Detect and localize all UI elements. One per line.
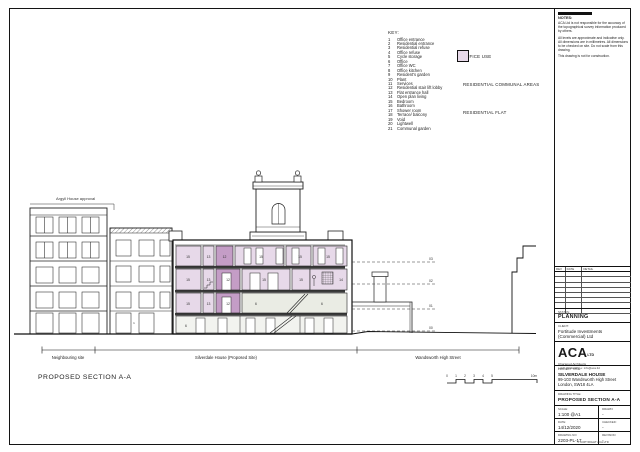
svg-text:15: 15: [262, 278, 266, 282]
notes-paragraph: All levels are approximate and indicativ…: [558, 36, 628, 52]
finial-post: [294, 176, 301, 182]
copyright-footer: © COPYRIGHT ACA LTD: [555, 440, 631, 444]
floor-slab: [175, 290, 345, 293]
notes-title: NOTES:: [558, 16, 628, 20]
project-label: PROJECT TITLE:: [558, 367, 628, 371]
notes-paragraph: This drawing is not for construction.: [558, 54, 628, 58]
client-label: CLIENT:: [558, 324, 628, 328]
svg-text:6: 6: [321, 302, 323, 306]
finial-ball: [295, 171, 299, 175]
status-value: PLANNING: [558, 314, 628, 320]
floor-slab: [175, 266, 345, 269]
front-elevation-block: 1: [110, 228, 172, 334]
site-dimension-line: [42, 347, 519, 354]
svg-text:15: 15: [186, 302, 190, 306]
chimney-cap: [372, 272, 388, 277]
notes-header-bar: [558, 12, 592, 15]
tower-cupola: [250, 171, 306, 243]
svg-text:02: 02: [429, 279, 433, 283]
client-name: (Commercial) Ltd: [558, 334, 628, 339]
svg-text:15: 15: [186, 255, 190, 259]
approval-note: Argyll House approval: [56, 196, 95, 201]
notes-block: NOTES: ACA Ltd is not responsible for th…: [555, 12, 631, 61]
svg-text:12: 12: [226, 278, 230, 282]
svg-text:4: 4: [482, 374, 484, 378]
svg-text:15: 15: [298, 255, 302, 259]
field-row: DATE: 14/12/2020 CHECKED: -: [555, 419, 631, 432]
drawing-title-value: PROPOSED SECTION A-A: [558, 397, 628, 402]
legend-item-office: OFFICE USE: [457, 50, 539, 62]
status-section: STATUS: PLANNING: [555, 308, 631, 320]
key-list: KEY: 1Office entrance 2Residential entra…: [388, 30, 463, 131]
svg-text:15: 15: [299, 278, 303, 282]
client-name: Fortitude Investments: [558, 329, 628, 334]
svg-text:12: 12: [223, 255, 227, 259]
checked-value: -: [602, 425, 631, 430]
client-section: CLIENT: Fortitude Investments (Commercia…: [555, 322, 631, 339]
room-number: 6: [185, 324, 187, 328]
company-logo-suffix: LTD: [587, 353, 594, 357]
title-block: NOTES: ACA Ltd is not responsible for th…: [554, 8, 631, 445]
svg-text:5: 5: [491, 374, 493, 378]
section-drawing: Argyll House approval: [0, 0, 640, 452]
svg-text:Neighbouring site: Neighbouring site: [52, 355, 85, 360]
room-office: [242, 293, 347, 313]
svg-text:15: 15: [259, 255, 263, 259]
svg-text:15: 15: [186, 278, 190, 282]
scale-label: SCALE:: [558, 407, 598, 411]
svg-text:13: 13: [207, 302, 211, 306]
chimney: [374, 276, 386, 302]
drawing-title-label: DRAWING TITLE:: [558, 392, 628, 396]
drawing-number-label: DRAWING NO:: [558, 433, 598, 437]
drawing-caption: PROPOSED SECTION A-A: [38, 374, 131, 381]
site-segment-labels: Neighbouring site Silverdale House (Prop…: [52, 355, 462, 360]
revision-label: REVISION:: [602, 433, 631, 437]
scale-bar: 0 1 2 3 4 5 10m: [446, 374, 537, 383]
right-wing: [352, 272, 412, 333]
company-logo: ACA: [558, 345, 587, 360]
level-lines: [352, 262, 436, 331]
date-value: 14/12/2020: [558, 425, 598, 430]
svg-text:Wandsworth High Street: Wandsworth High Street: [415, 355, 461, 360]
legend-item-communal: RESIDENTIAL COMMUNAL AREAS: [457, 78, 539, 90]
legend: OFFICE USE RESIDENTIAL COMMUNAL AREAS RE…: [457, 50, 539, 134]
level-labels: 03 02 01 00: [429, 257, 433, 330]
svg-text:01: 01: [429, 304, 433, 308]
field-row: SCALE: 1:100 @A1 DRAWN: -: [555, 406, 631, 419]
drawn-label: DRAWN:: [602, 407, 631, 411]
scale-value: 1:100 @A1: [558, 412, 598, 417]
floor-slab: [175, 313, 347, 316]
scale-bar-labels: 0 1 2 3 4 5 10m: [446, 374, 537, 378]
svg-text:10m: 10m: [531, 374, 538, 378]
project-address: London, SW18 4LA: [558, 382, 628, 387]
neighbouring-building-right-profile: [512, 246, 536, 333]
svg-text:2: 2: [464, 374, 466, 378]
svg-text:03: 03: [429, 257, 433, 261]
svg-text:1: 1: [455, 374, 457, 378]
project-section: PROJECT TITLE: SILVERDALE HOUSE 99-103 W…: [555, 365, 631, 387]
svg-text:13: 13: [207, 255, 211, 259]
legend-swatch-flat: [457, 50, 469, 62]
svg-text:Silverdale House (Proposed Sit: Silverdale House (Proposed Site): [195, 355, 258, 360]
checked-label: CHECKED:: [602, 420, 631, 424]
revision-table: REV DATE DETAIL: [555, 266, 631, 314]
legend-label: RESIDENTIAL FLAT: [463, 110, 506, 115]
svg-text:12: 12: [226, 302, 230, 306]
legend-item-flat: RESIDENTIAL FLAT: [457, 106, 539, 118]
svg-text:0: 0: [446, 374, 448, 378]
lower-ground-rooms: 6: [176, 316, 347, 333]
svg-text:14: 14: [339, 278, 343, 282]
legend-label: RESIDENTIAL COMMUNAL AREAS: [463, 82, 539, 87]
drawn-value: -: [602, 412, 631, 417]
svg-text:15: 15: [326, 255, 330, 259]
svg-text:3: 3: [473, 374, 475, 378]
finial-post: [255, 176, 262, 182]
notes-paragraph: ACA Ltd is not responsible for the accur…: [558, 21, 628, 33]
svg-text:13: 13: [207, 278, 211, 282]
neighbouring-building-left: [30, 208, 107, 334]
svg-text:00: 00: [429, 326, 433, 330]
doors: [222, 273, 278, 290]
drawing-title-section: DRAWING TITLE: PROPOSED SECTION A-A: [555, 390, 631, 402]
date-label: DATE:: [558, 420, 598, 424]
finial-ball: [256, 171, 260, 175]
key-title: KEY:: [388, 30, 463, 35]
drawing-sheet: Argyll House approval: [0, 0, 640, 452]
key-item: 21Communal garden: [388, 127, 463, 131]
room-bedroom: [242, 269, 290, 290]
grille-window: [322, 272, 333, 284]
svg-text:6: 6: [255, 302, 257, 306]
